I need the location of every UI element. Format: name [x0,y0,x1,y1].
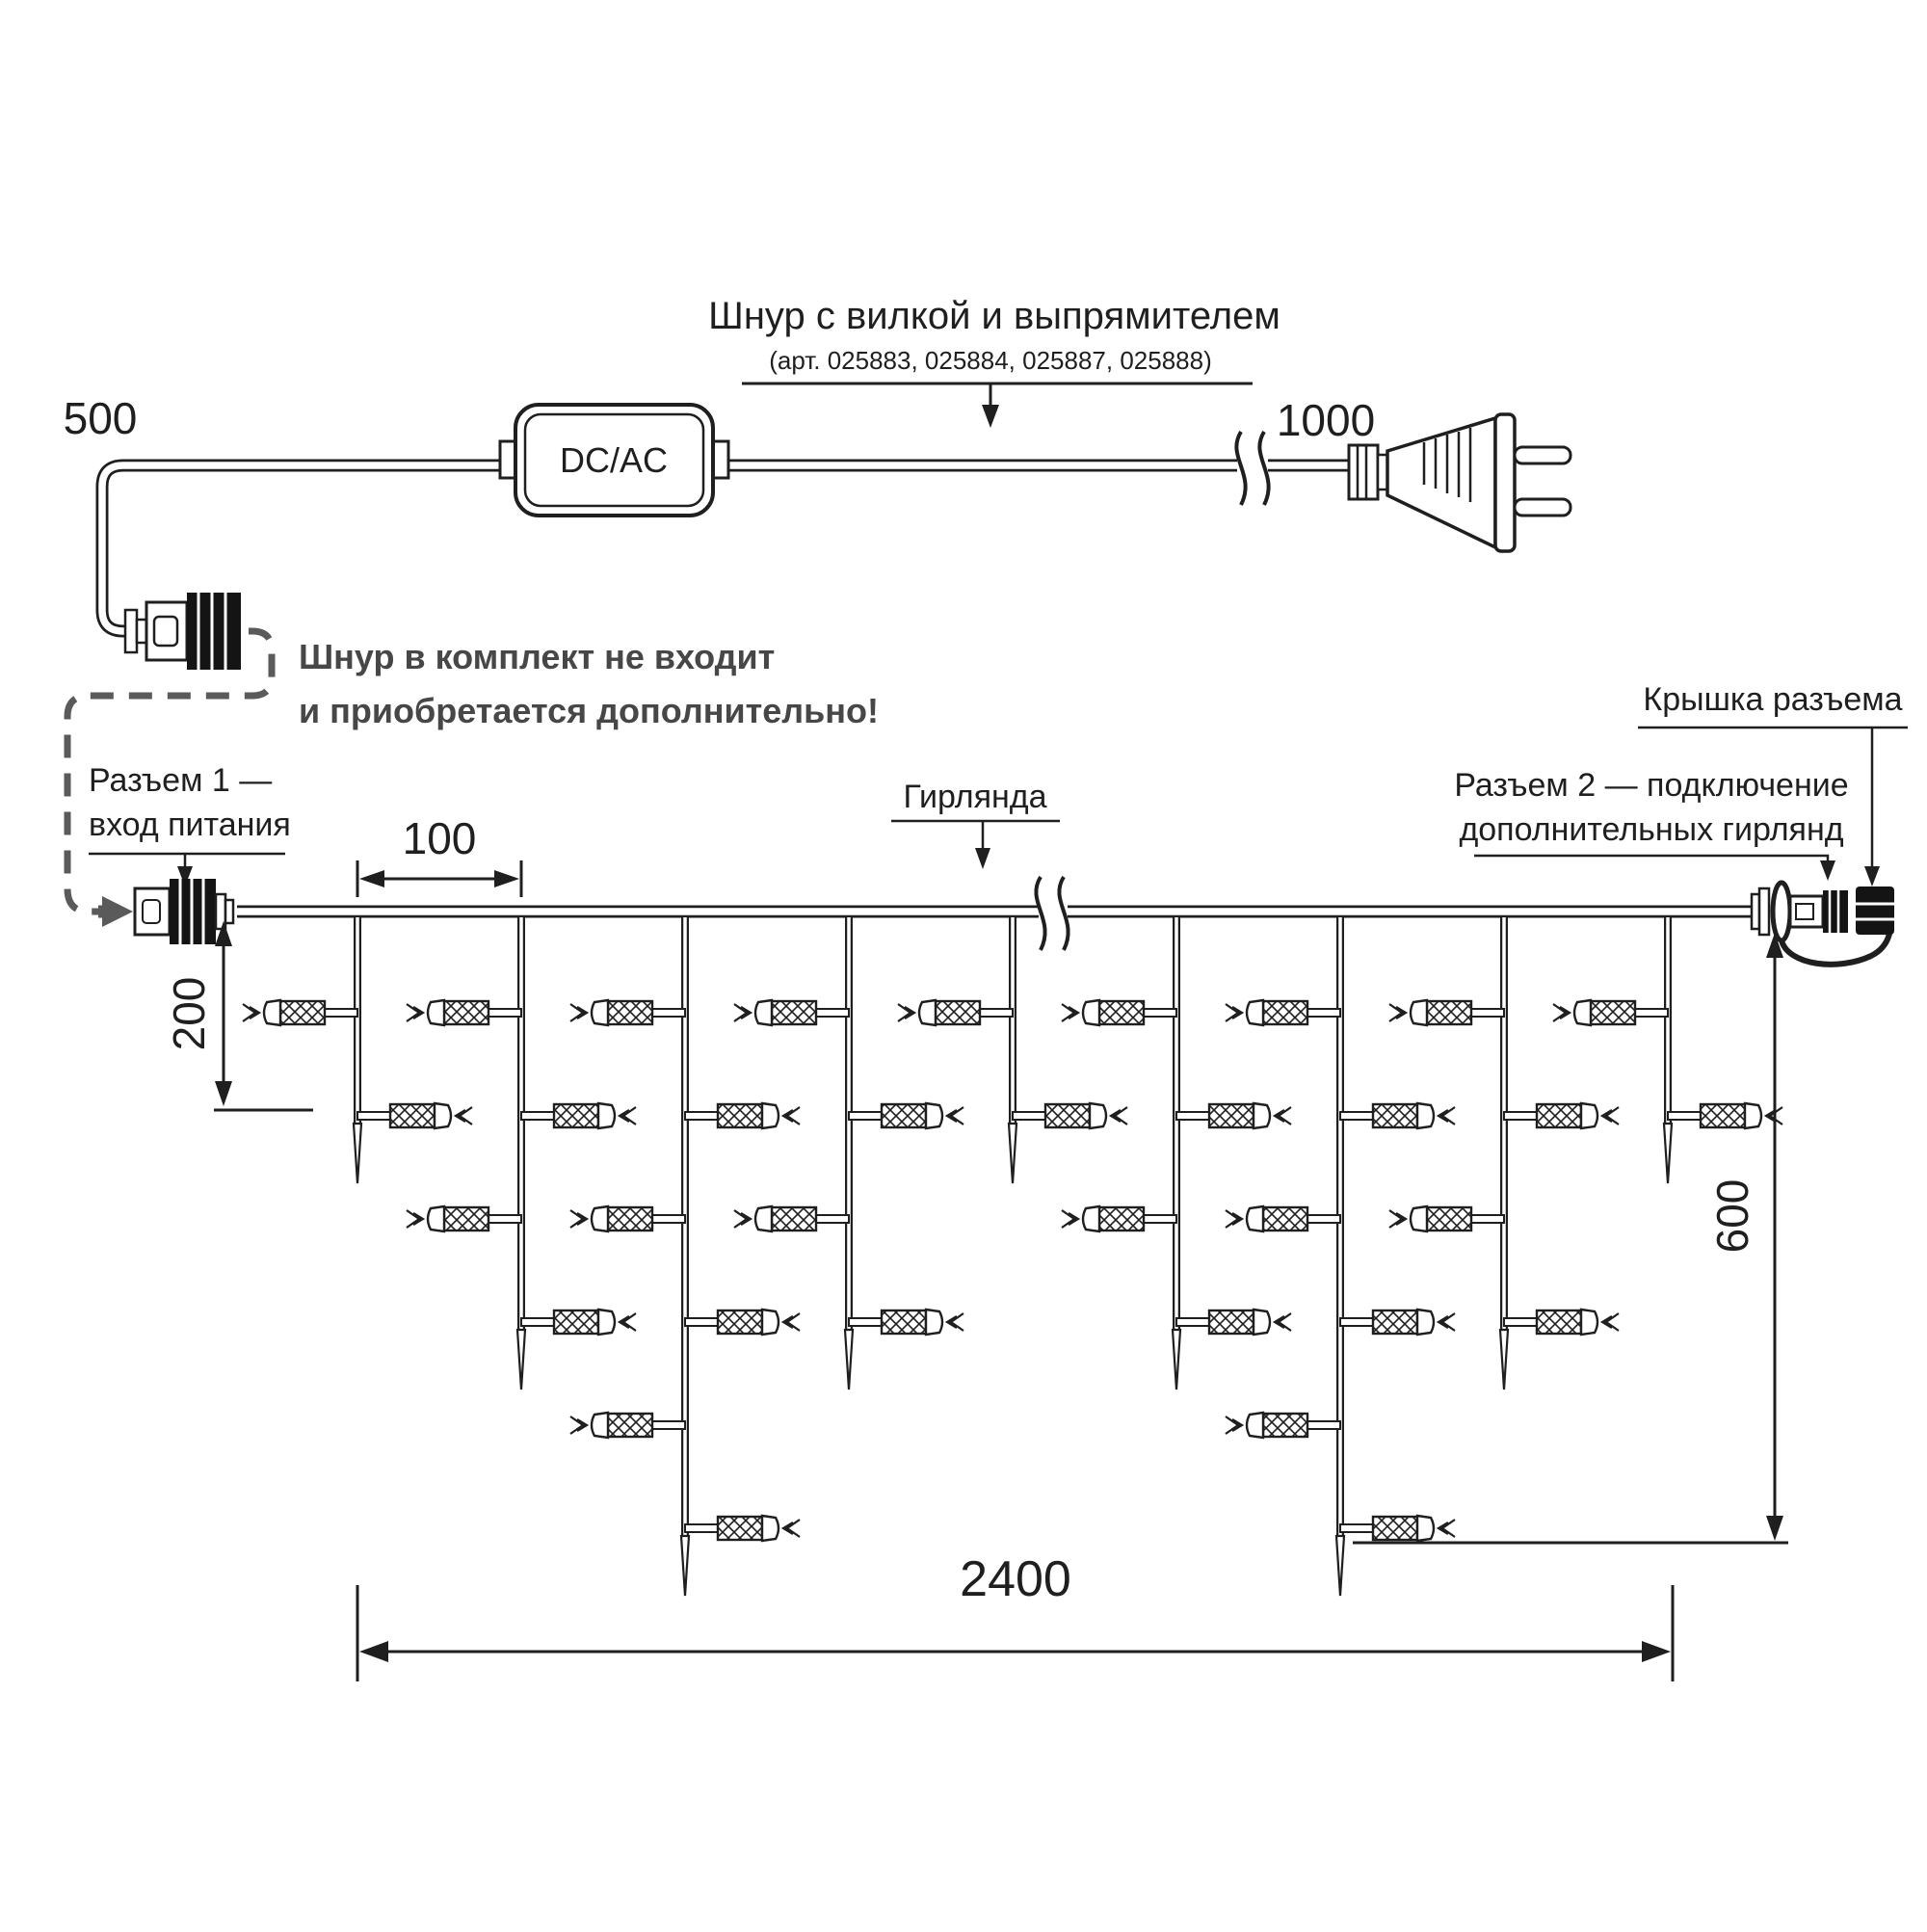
dim-2400-group: 2400 [357,1551,1673,1681]
light-rays-icon [1389,1210,1406,1228]
cap-arrow-icon [1864,866,1880,887]
led-bulb [1668,1103,1782,1128]
light-rays-icon [1439,1313,1455,1331]
light-rays-icon [783,1520,800,1537]
bulb-cap [1083,1000,1099,1025]
light-rays-icon [734,1210,751,1228]
connector2-label-line2: дополнительных гирлянд [1459,811,1843,848]
light-rays-icon [1553,1004,1570,1021]
light-rays-icon [783,1107,800,1125]
light-rays-icon [947,1107,963,1125]
bulb-cap [1247,1206,1263,1231]
light-rays-icon [1226,1210,1242,1228]
led-bulb [407,1206,521,1231]
cord-title: Шнур с вилкой и выпрямителем [708,295,1280,337]
connector-cap-icon [1856,887,1894,935]
bulb-cap [598,1103,615,1128]
bulb-cap [755,1206,772,1231]
led-bulb [1226,1206,1340,1231]
drop-tip [1336,1536,1344,1596]
led-bulb [1553,1000,1668,1025]
bulb-cap [592,1413,608,1438]
bulb-cap [926,1310,942,1335]
dim-100: 100 [403,813,477,863]
bulb-cap [1581,1310,1597,1335]
bulb-cap [592,1000,608,1025]
light-rays-icon [620,1107,636,1125]
cap-pointer [1638,728,1908,887]
led-bulb [1062,1000,1176,1025]
connector2-pointer [1474,856,1835,881]
led-bulb [570,1413,685,1438]
drop-tip [354,1124,361,1183]
bulb-cap [435,1103,451,1128]
drop-tip [1009,1124,1016,1183]
bulb-cap [1417,1310,1434,1335]
diagram-canvas: Шнур с вилкой и выпрямителем (арт. 02588… [0,0,1927,1927]
bulb-cap [1417,1516,1434,1541]
dim-100-group: 100 [357,813,521,897]
bulb-cap [1090,1103,1106,1128]
light-rays-icon [570,1004,587,1021]
light-rays-icon [1062,1210,1078,1228]
note-line1: Шнур в комплект не входит [299,637,775,676]
led-bulb [1226,1413,1340,1438]
led-bulb [570,1000,685,1025]
bulb-cap [428,1000,444,1025]
led-bulb [734,1206,849,1231]
bulb-cap [598,1310,615,1335]
light-rays-icon [570,1416,587,1434]
led-bulb [898,1000,1013,1025]
cord-subtitle: (арт. 025883, 025884, 025887, 025888) [769,346,1212,375]
led-bulb [1226,1000,1340,1025]
led-bulb [849,1310,963,1335]
led-bulb [1176,1103,1291,1128]
led-bulb [1389,1206,1504,1231]
title-pointer-arrow-icon [982,405,999,428]
light-rays-icon [407,1004,423,1021]
bulb-cap [1254,1310,1270,1335]
connector2-arrow-icon [1820,860,1835,881]
light-rays-icon [407,1210,423,1228]
led-bulb [521,1103,636,1128]
bulb-cap [926,1103,942,1128]
led-bulb [1340,1103,1455,1128]
led-bulb [1389,1000,1504,1025]
bulb-cap [1247,1000,1263,1025]
icicle-drop-9 [1553,915,1782,1183]
dcac-label: DC/AC [560,440,668,480]
bulb-cap [428,1206,444,1231]
icicle-drops-layer [243,915,1782,1596]
bulb-cap [1411,1000,1427,1025]
drop-tip [845,1330,853,1389]
drop-tip [517,1330,525,1389]
connector2-label-line1: Разъем 2 — подключение [1454,767,1848,804]
light-rays-icon [1602,1313,1619,1331]
light-rays-icon [1111,1107,1127,1125]
led-bulb [1013,1103,1127,1128]
led-bulb [1062,1206,1176,1231]
light-rays-icon [783,1313,800,1331]
led-bulb [521,1310,636,1335]
bulb-cap [1745,1103,1761,1128]
dim-500: 500 [64,393,138,443]
led-bulb [849,1103,963,1128]
led-bulb [1176,1310,1291,1335]
bulb-cap [919,1000,936,1025]
drop-tip [681,1536,689,1596]
light-rays-icon [570,1210,587,1228]
bulb-cap [592,1206,608,1231]
led-bulb [407,1000,521,1025]
garland-connector1-icon [135,879,233,944]
light-rays-icon [1439,1107,1455,1125]
cap-label: Крышка разъема [1643,681,1902,718]
bulb-cap [762,1310,779,1335]
power-plug-icon [1349,414,1571,551]
led-bulb [1340,1516,1455,1541]
icicle-drop-2 [407,915,636,1389]
light-rays-icon [1226,1004,1242,1021]
led-bulb [243,1000,357,1025]
light-rays-icon [1389,1004,1406,1021]
icicle-drop-5 [898,915,1127,1183]
led-bulb [1504,1310,1619,1335]
drop-tip [1173,1330,1180,1389]
dim-2400: 2400 [960,1551,1071,1607]
bulb-cap [762,1516,779,1541]
garland-break-icon [1036,877,1068,950]
light-rays-icon [456,1107,472,1125]
connector1-label-line1: Разъем 1 — [89,762,272,799]
icicle-drop-1 [243,915,472,1183]
led-bulb [357,1103,472,1128]
light-rays-icon [947,1313,963,1331]
light-rays-icon [1062,1004,1078,1021]
bulb-cap [1574,1000,1591,1025]
led-bulb [1340,1310,1455,1335]
garland-pointer [891,821,1060,869]
bulb-cap [1254,1103,1270,1128]
led-bulb [685,1516,800,1541]
light-rays-icon [1602,1107,1619,1125]
icicle-drop-6 [1062,915,1291,1389]
note-line2: и приобретается дополнительно! [299,691,879,730]
bulb-cap [1247,1413,1263,1438]
led-bulb [734,1000,849,1025]
dim-200: 200 [164,977,214,1051]
led-bulb [1504,1103,1619,1128]
dcac-adapter: DC/AC [500,405,728,516]
bulb-cap [1083,1206,1099,1231]
cord-break-icon [1236,432,1268,505]
light-rays-icon [243,1004,259,1021]
light-rays-icon [734,1004,751,1021]
garland-label: Гирлянда [903,779,1046,815]
dim-600: 600 [1707,1179,1757,1254]
light-rays-icon [1226,1416,1242,1434]
bulb-cap [1417,1103,1434,1128]
light-rays-icon [620,1313,636,1331]
light-rays-icon [898,1004,914,1021]
bulb-cap [1581,1103,1597,1128]
led-bulb [685,1310,800,1335]
connector1-label-line2: вход питания [89,807,291,843]
led-bulb [570,1206,685,1231]
bulb-cap [1411,1206,1427,1231]
cord-connector-icon [125,593,241,670]
drop-tip [1664,1124,1672,1183]
light-rays-icon [1275,1313,1291,1331]
light-rays-icon [1275,1107,1291,1125]
garland-schematic: Шнур с вилкой и выпрямителем (арт. 02588… [0,0,1927,1927]
bulb-cap [762,1103,779,1128]
bulb-cap [264,1000,280,1025]
bulb-cap [755,1000,772,1025]
dashed-arrow-icon [102,896,133,927]
light-rays-icon [1439,1520,1455,1537]
garland-arrow-icon [975,848,990,869]
drop-tip [1500,1330,1508,1389]
led-bulb [685,1103,800,1128]
dim-1000: 1000 [1277,395,1375,445]
